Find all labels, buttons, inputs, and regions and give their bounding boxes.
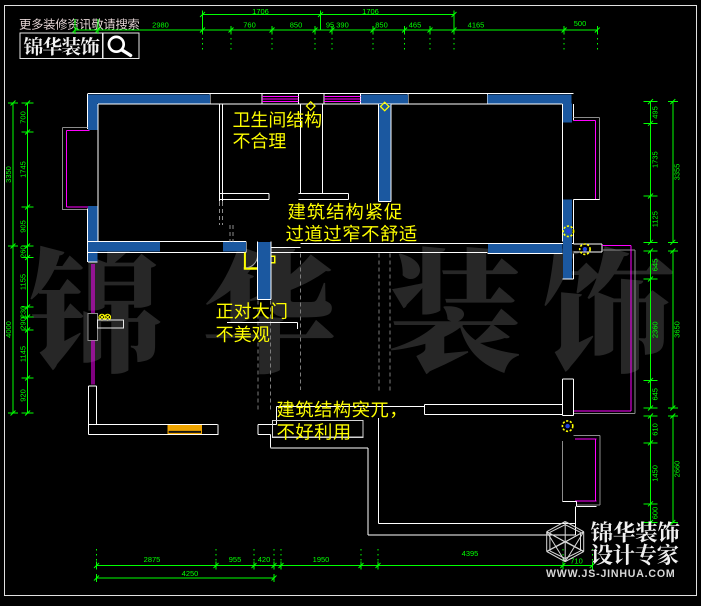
svg-text:645: 645 <box>651 388 660 401</box>
svg-text:850: 850 <box>290 21 303 30</box>
svg-text:95: 95 <box>326 21 334 30</box>
svg-text:2980: 2980 <box>152 21 169 30</box>
svg-text:645: 645 <box>651 259 660 272</box>
svg-text:1145: 1145 <box>19 346 28 362</box>
svg-text:955: 955 <box>229 555 242 564</box>
svg-text:500: 500 <box>574 19 587 28</box>
svg-text:1155: 1155 <box>19 274 28 290</box>
svg-text:1450: 1450 <box>651 465 660 482</box>
svg-text:2360: 2360 <box>651 321 660 338</box>
svg-text:3350: 3350 <box>4 166 13 183</box>
svg-text:230: 230 <box>19 306 28 319</box>
svg-text:850: 850 <box>375 21 388 30</box>
svg-text:1745: 1745 <box>19 161 28 178</box>
svg-text:3355: 3355 <box>673 164 682 181</box>
svg-text:760: 760 <box>243 21 256 30</box>
svg-text:700: 700 <box>19 111 28 124</box>
svg-text:920: 920 <box>19 389 28 402</box>
svg-text:1125: 1125 <box>651 211 660 227</box>
svg-text:4250: 4250 <box>182 569 199 578</box>
svg-text:1735: 1735 <box>651 151 660 168</box>
svg-text:1706: 1706 <box>252 7 269 16</box>
svg-text:600: 600 <box>651 507 660 520</box>
svg-text:495: 495 <box>651 106 660 119</box>
svg-text:290: 290 <box>19 317 28 330</box>
svg-text:WWW.JS-JINHUA.COM: WWW.JS-JINHUA.COM <box>546 568 676 580</box>
svg-text:4165: 4165 <box>468 21 485 30</box>
svg-text:420: 420 <box>258 555 271 564</box>
svg-text:905: 905 <box>19 220 28 233</box>
svg-text:4000: 4000 <box>4 321 13 338</box>
svg-text:465: 465 <box>409 21 422 30</box>
svg-text:4395: 4395 <box>462 549 479 558</box>
svg-text:260: 260 <box>19 245 28 258</box>
svg-text:2875: 2875 <box>144 555 161 564</box>
svg-text:2660: 2660 <box>673 461 682 478</box>
svg-text:610: 610 <box>651 423 660 436</box>
svg-text:390: 390 <box>336 21 349 30</box>
svg-text:1706: 1706 <box>362 7 379 16</box>
svg-text:3650: 3650 <box>673 321 682 338</box>
svg-text:1950: 1950 <box>313 555 330 564</box>
